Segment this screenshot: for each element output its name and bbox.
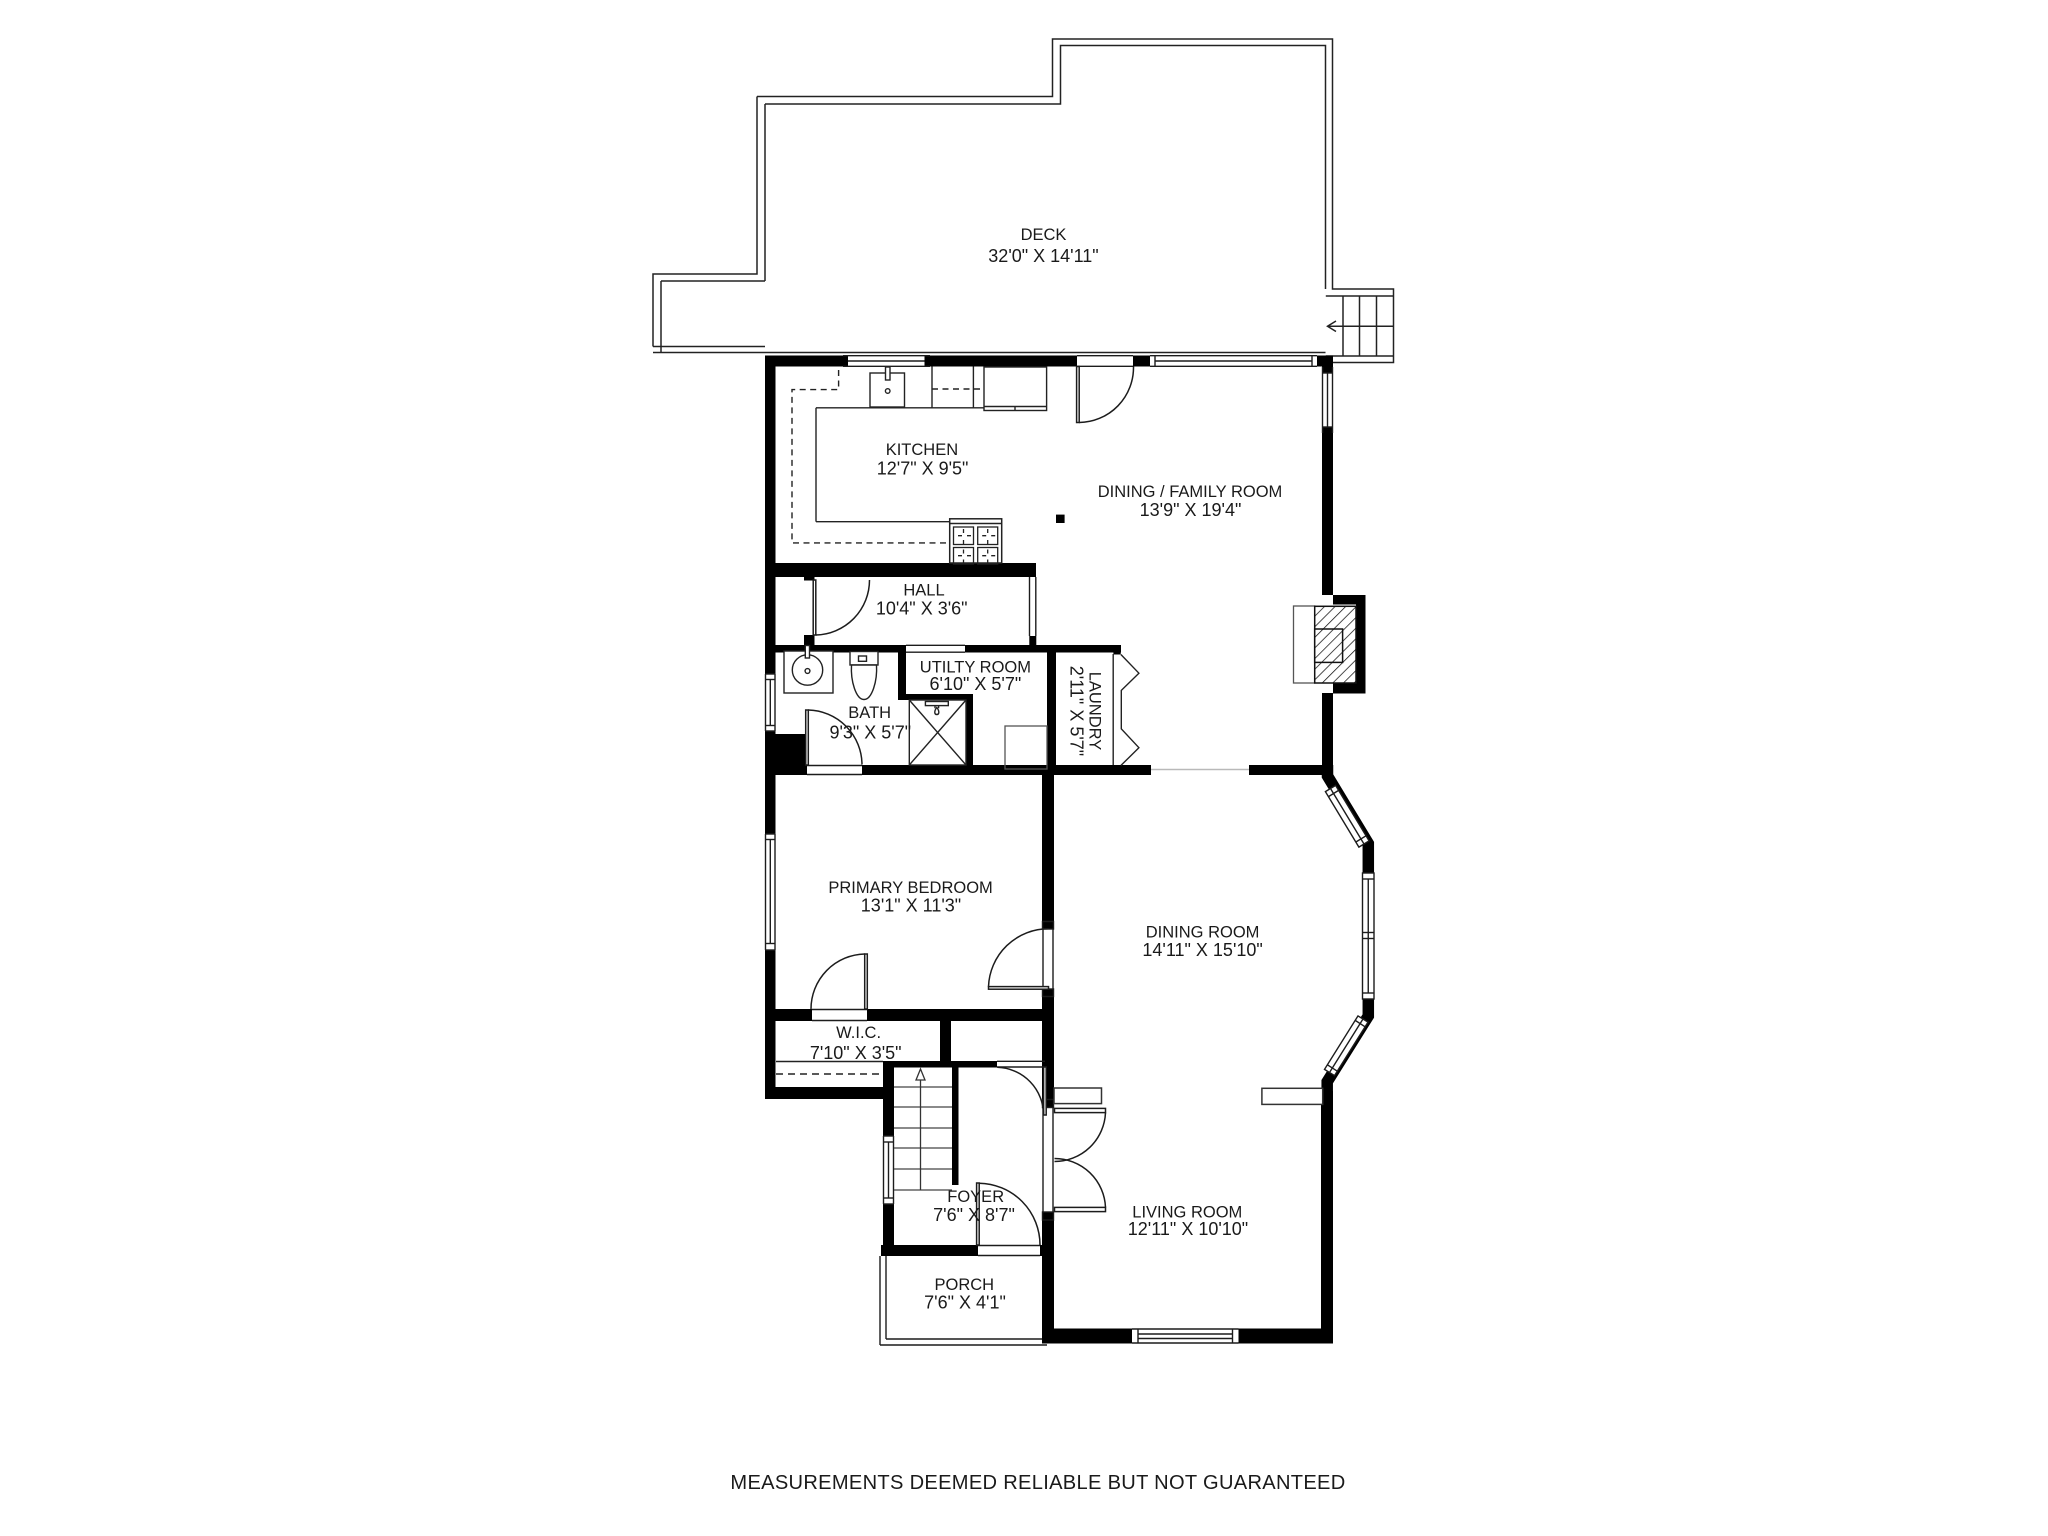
svg-text:DINING / FAMILY ROOM: DINING / FAMILY ROOM <box>1098 483 1283 501</box>
svg-text:PRIMARY BEDROOM: PRIMARY BEDROOM <box>828 879 992 897</box>
svg-text:W.I.C.: W.I.C. <box>836 1024 881 1042</box>
svg-text:9'3" X 5'7": 9'3" X 5'7" <box>829 723 911 743</box>
svg-text:DINING ROOM: DINING ROOM <box>1146 924 1260 942</box>
svg-text:7'6" X 8'7": 7'6" X 8'7" <box>933 1205 1015 1225</box>
svg-text:DECK: DECK <box>1021 226 1067 244</box>
svg-text:LAUNDRY: LAUNDRY <box>1086 672 1104 751</box>
svg-text:10'4" X 3'6": 10'4" X 3'6" <box>876 599 968 619</box>
svg-text:PORCH: PORCH <box>935 1276 995 1294</box>
svg-text:6'10" X 5'7": 6'10" X 5'7" <box>930 674 1022 694</box>
svg-text:BATH: BATH <box>848 704 891 722</box>
svg-text:12'7" X 9'5": 12'7" X 9'5" <box>877 458 969 478</box>
svg-text:HALL: HALL <box>903 582 944 600</box>
svg-text:KITCHEN: KITCHEN <box>886 441 958 459</box>
svg-text:12'11" X 10'10": 12'11" X 10'10" <box>1128 1219 1248 1239</box>
svg-text:FOYER: FOYER <box>947 1188 1004 1206</box>
svg-text:14'11" X 15'10": 14'11" X 15'10" <box>1142 940 1262 960</box>
svg-text:7'10" X 3'5": 7'10" X 3'5" <box>810 1043 902 1063</box>
svg-text:13'9" X 19'4": 13'9" X 19'4" <box>1140 500 1242 520</box>
svg-text:13'1" X 11'3": 13'1" X 11'3" <box>861 896 961 916</box>
svg-text:7'6" X 4'1": 7'6" X 4'1" <box>924 1293 1006 1313</box>
svg-text:MEASUREMENTS DEEMED RELIABLE B: MEASUREMENTS DEEMED RELIABLE BUT NOT GUA… <box>730 1472 1345 1494</box>
svg-text:2'11" X 5'7": 2'11" X 5'7" <box>1067 666 1087 756</box>
svg-text:32'0" X 14'11": 32'0" X 14'11" <box>988 246 1098 266</box>
